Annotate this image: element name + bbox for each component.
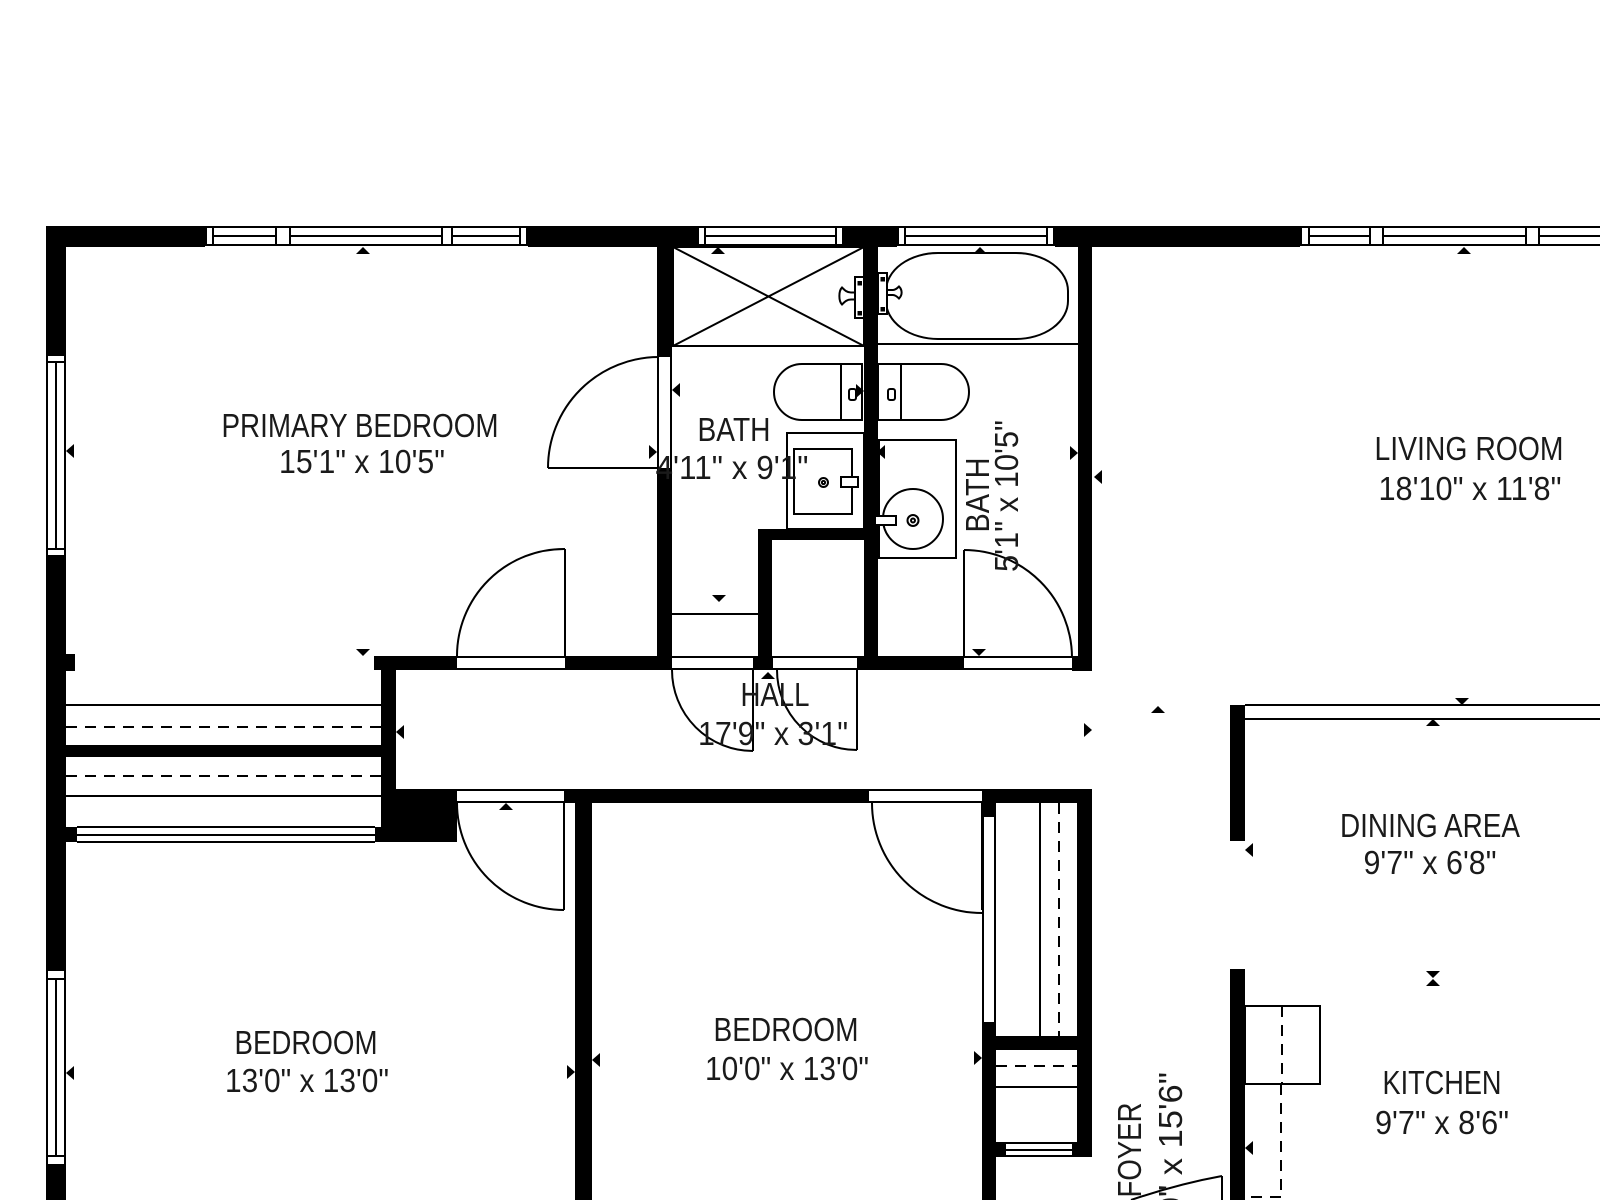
svg-text:BATH: BATH — [698, 411, 771, 448]
svg-text:LIVING ROOM: LIVING ROOM — [1375, 430, 1564, 467]
svg-text:17'9" x 3'1": 17'9" x 3'1" — [698, 715, 848, 752]
svg-text:4'11" x 9'1": 4'11" x 9'1" — [656, 449, 809, 486]
svg-text:10'0" x 13'0": 10'0" x 13'0" — [705, 1050, 869, 1087]
svg-text:BEDROOM: BEDROOM — [235, 1024, 378, 1061]
svg-text:KITCHEN: KITCHEN — [1383, 1064, 1502, 1101]
svg-text:PRIMARY BEDROOM: PRIMARY BEDROOM — [222, 407, 499, 444]
svg-text:FOYER: FOYER — [1111, 1103, 1148, 1198]
svg-text:18'10" x 11'8": 18'10" x 11'8" — [1379, 470, 1562, 507]
svg-text:BEDROOM: BEDROOM — [714, 1011, 859, 1048]
svg-text:9'7" x 8'6": 9'7" x 8'6" — [1375, 1104, 1509, 1141]
svg-text:13'0" x 13'0": 13'0" x 13'0" — [225, 1062, 389, 1099]
svg-text:DINING AREA: DINING AREA — [1340, 807, 1520, 844]
svg-text:HALL: HALL — [741, 676, 810, 713]
svg-text:5'1" x 10'5": 5'1" x 10'5" — [988, 420, 1025, 572]
svg-text:9'7" x 6'8": 9'7" x 6'8" — [1364, 844, 1497, 881]
svg-text:7'0" x 15'6": 7'0" x 15'6" — [1152, 1072, 1189, 1200]
svg-text:15'1" x 10'5": 15'1" x 10'5" — [279, 443, 445, 480]
